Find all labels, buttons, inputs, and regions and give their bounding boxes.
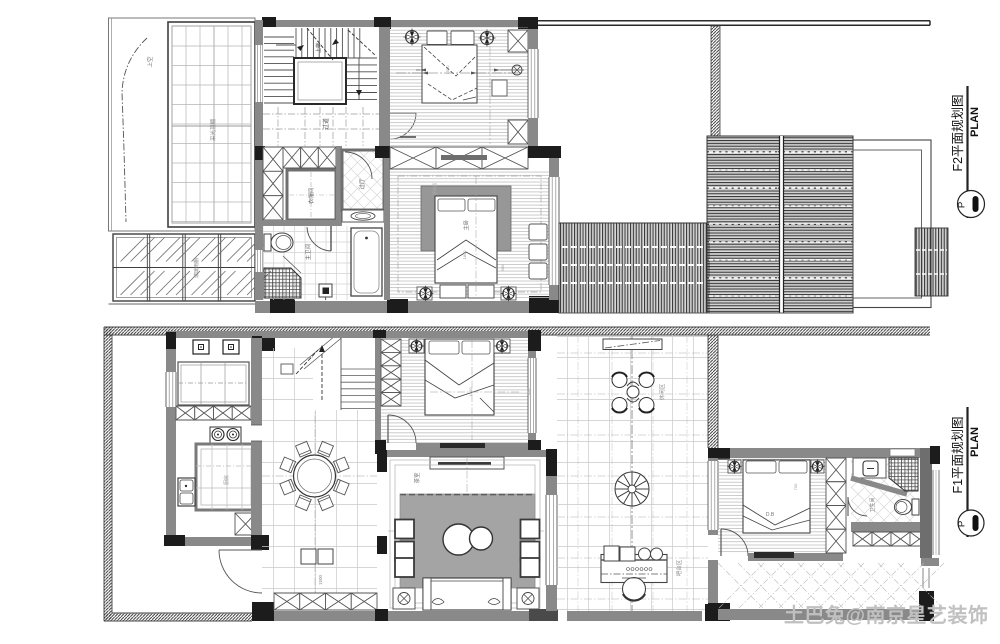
- svg-text:茶室: 茶室: [413, 472, 421, 484]
- svg-text:P: P: [957, 521, 968, 527]
- svg-text:1500: 1500: [468, 387, 473, 397]
- svg-text:D.B: D.B: [766, 512, 775, 518]
- svg-text:1500: 1500: [445, 65, 450, 75]
- svg-text:玻璃雨棚: 玻璃雨棚: [193, 258, 200, 278]
- svg-text:过厅: 过厅: [358, 178, 366, 190]
- svg-text:主卧: 主卧: [462, 219, 470, 231]
- svg-text:F1平面规划图: F1平面规划图: [950, 416, 965, 493]
- svg-text:吧台区: 吧台区: [675, 559, 683, 576]
- svg-text:厨房: 厨房: [223, 475, 230, 485]
- svg-text:600: 600: [500, 264, 505, 271]
- svg-text:建筑面: 建筑面: [431, 183, 437, 195]
- svg-text:休闲区: 休闲区: [658, 383, 666, 400]
- svg-text:450: 450: [526, 388, 531, 395]
- svg-text:卫生间: 卫生间: [869, 497, 876, 512]
- svg-text:790: 790: [793, 483, 798, 490]
- svg-text:主卫间: 主卫间: [304, 244, 312, 261]
- svg-text:PLAN: PLAN: [969, 107, 981, 137]
- svg-text:F2平面规划图: F2平面规划图: [950, 94, 965, 171]
- svg-text:上空: 上空: [146, 56, 154, 68]
- svg-text:衣帽间: 衣帽间: [307, 188, 315, 205]
- svg-text:土巴兔@南京星艺装饰: 土巴兔@南京星艺装饰: [784, 603, 989, 627]
- svg-text:1500: 1500: [318, 574, 323, 585]
- svg-text:1800: 1800: [462, 250, 467, 260]
- svg-text:采光顶棚: 采光顶棚: [209, 119, 217, 142]
- svg-text:上梯: 上梯: [315, 43, 322, 53]
- svg-text:P: P: [957, 202, 968, 208]
- svg-text:过道: 过道: [322, 118, 330, 130]
- svg-text:PLAN: PLAN: [969, 427, 981, 457]
